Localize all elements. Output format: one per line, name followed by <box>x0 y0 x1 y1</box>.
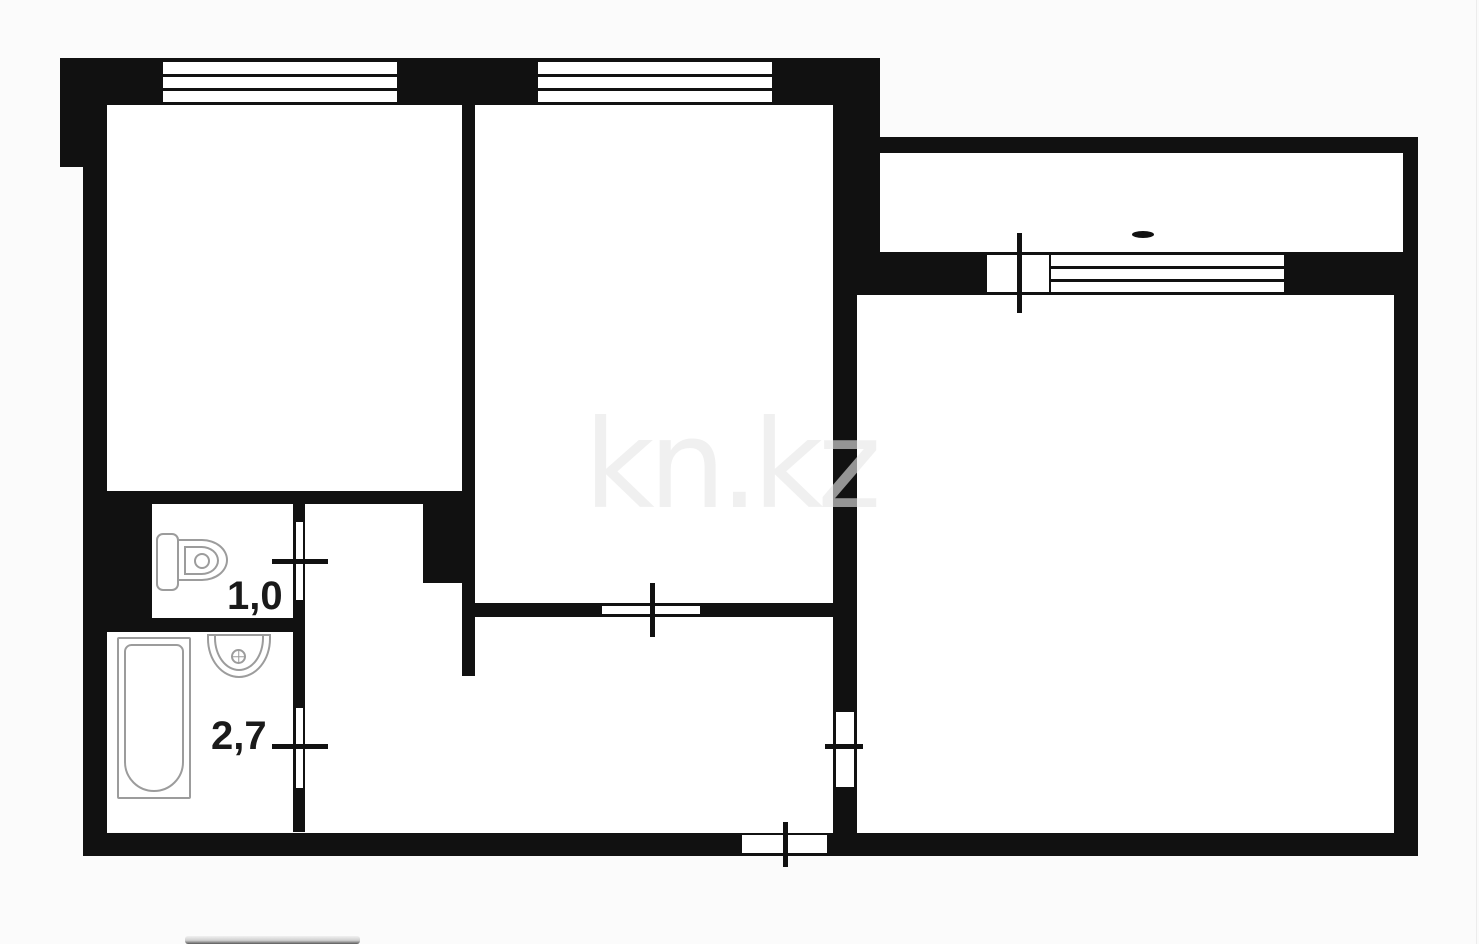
toilet-tank <box>156 533 179 591</box>
room-right <box>857 295 1394 833</box>
window-room1 <box>163 62 397 102</box>
wall-toilet-left-block <box>107 503 152 618</box>
wall-balcony-left-block <box>833 103 880 252</box>
bottom-cropped-bar <box>185 936 360 944</box>
area-label-bath: 2,7 <box>211 716 267 756</box>
window-room2-mullion <box>538 74 772 77</box>
tick-door-entrance <box>783 822 788 867</box>
wall-left <box>83 167 107 856</box>
door-right-room <box>836 712 854 787</box>
wall-divider-lower <box>462 583 475 676</box>
floor-plan-page: { "watermark": { "text": "kn.kz" }, "lab… <box>0 0 1479 944</box>
wall-left-corner-block <box>60 58 107 167</box>
wall-balcony-top <box>877 137 1418 153</box>
wall-toilet-bath-divider <box>107 618 293 632</box>
image-edge-line <box>1476 0 1477 944</box>
window-balcony-mullion <box>1051 266 1284 269</box>
bathtub-inner <box>124 644 184 792</box>
tick-door-toilet <box>272 559 328 564</box>
window-room1-mullion <box>163 74 397 77</box>
balcony-dash-mark <box>1132 231 1154 238</box>
tick-door-balcony <box>1017 233 1022 313</box>
corridor-mid <box>305 583 462 833</box>
floor-plan-canvas <box>0 0 1479 944</box>
room-top-middle <box>475 105 833 603</box>
tick-door-bathroom <box>272 744 328 749</box>
window-balcony-mullion <box>1051 279 1284 282</box>
tick-door-right-room <box>825 744 863 749</box>
window-room1-mullion <box>163 88 397 91</box>
wall-rooms-divider <box>462 105 475 492</box>
wall-right <box>1394 293 1418 856</box>
sink-faucet <box>231 649 246 664</box>
toilet-flush-hole <box>194 553 210 569</box>
corridor-gap <box>462 676 475 833</box>
room-top-left <box>107 105 463 491</box>
window-room2-mullion <box>538 88 772 91</box>
hallway <box>475 617 833 833</box>
area-label-toilet: 1,0 <box>227 576 283 616</box>
corridor-upper <box>305 503 423 583</box>
window-room2 <box>538 62 772 102</box>
wall-center-block <box>423 504 475 583</box>
window-balcony <box>1051 255 1284 292</box>
tick-door-room2 <box>650 583 655 637</box>
